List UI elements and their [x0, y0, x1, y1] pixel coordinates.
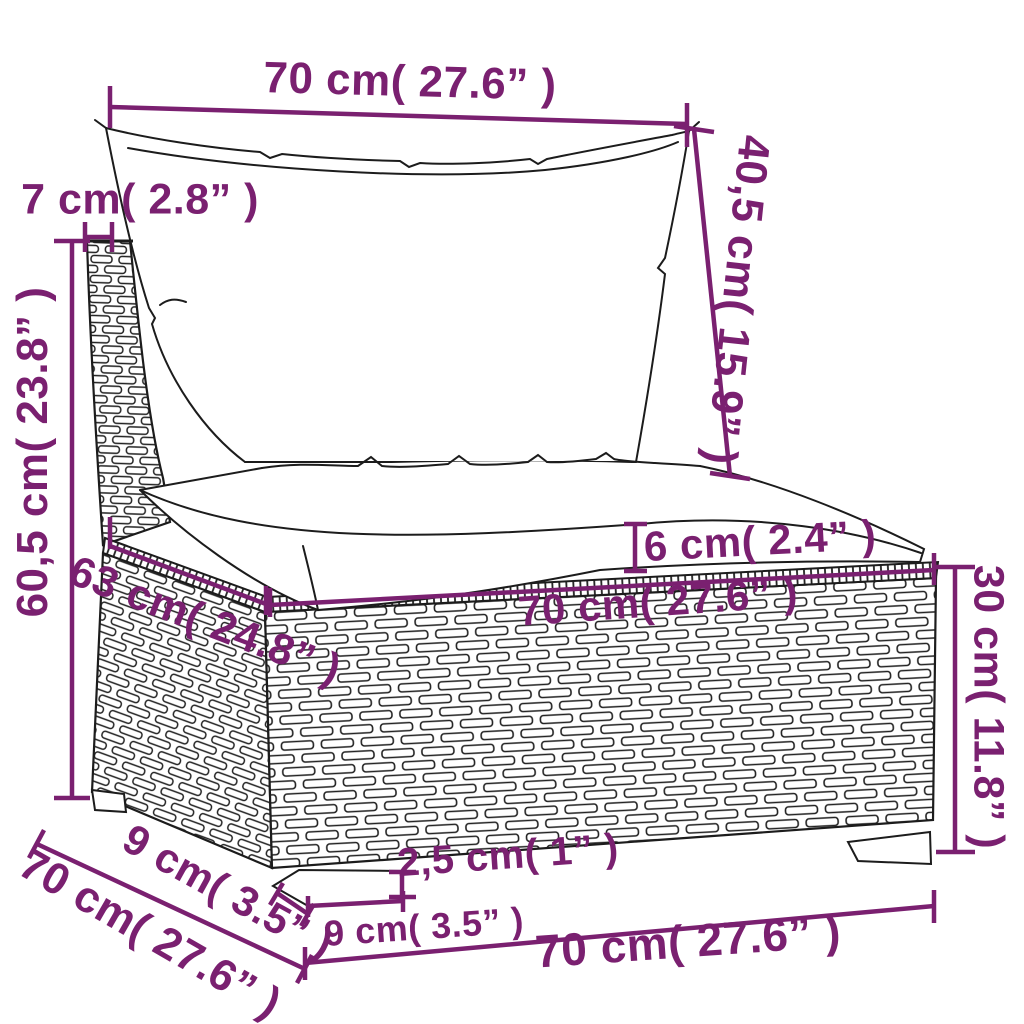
dim-label-back-width: 70 cm( 27.6” ) — [263, 53, 557, 111]
dimension-diagram: 70 cm( 27.6” ) 7 cm( 2.8” ) 40,5 cm( 15.… — [0, 0, 1024, 1024]
leg-front-right — [848, 832, 931, 864]
dim-label-back-panel-thickness: 7 cm( 2.8” ) — [21, 176, 259, 225]
dim-label-base-height: 30 cm( 11.8” ) — [964, 565, 1013, 849]
leg-back-left — [92, 790, 126, 812]
dim-line-total-height — [54, 241, 90, 798]
back-cushion — [95, 120, 699, 462]
dim-label-total-height: 60,5 cm( 23.8” ) — [8, 287, 58, 618]
